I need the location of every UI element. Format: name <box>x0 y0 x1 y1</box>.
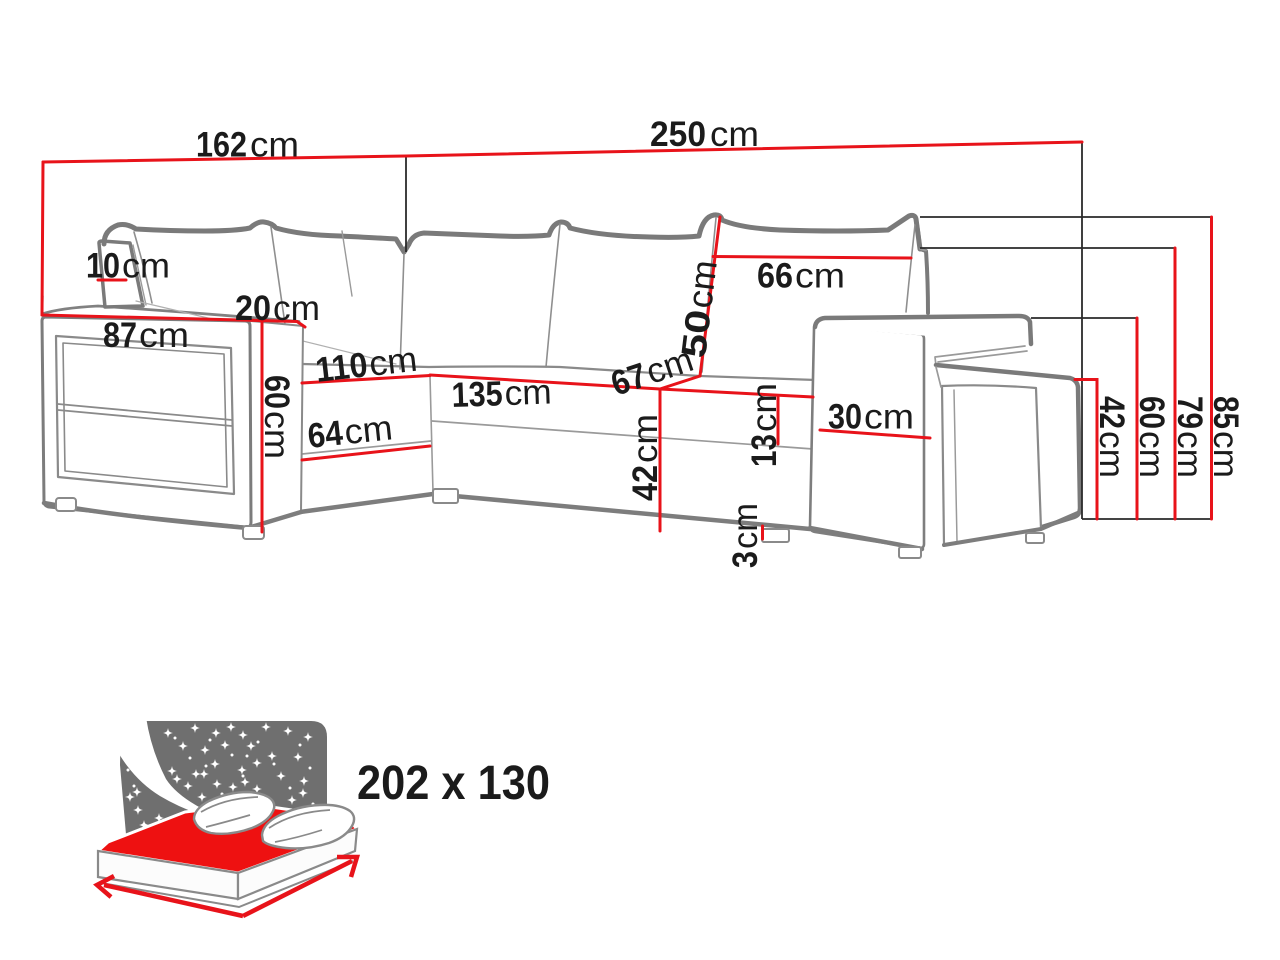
svg-text:cm: cm <box>680 258 725 310</box>
svg-text:42: 42 <box>626 465 665 501</box>
svg-text:42: 42 <box>1092 396 1131 429</box>
svg-text:162: 162 <box>196 126 247 165</box>
svg-text:cm: cm <box>864 398 914 437</box>
svg-text:202 x 130: 202 x 130 <box>357 757 550 810</box>
svg-text:250: 250 <box>650 115 706 154</box>
svg-text:cm: cm <box>626 414 665 463</box>
svg-text:cm: cm <box>257 411 296 459</box>
svg-text:66: 66 <box>757 257 793 296</box>
svg-text:cm: cm <box>726 503 765 549</box>
svg-text:3: 3 <box>726 551 765 568</box>
svg-text:cm: cm <box>504 373 552 414</box>
svg-text:79: 79 <box>1170 396 1209 429</box>
svg-text:cm: cm <box>1206 431 1245 478</box>
svg-text:60: 60 <box>1132 396 1171 429</box>
svg-text:cm: cm <box>1170 431 1209 478</box>
svg-text:cm: cm <box>273 289 320 328</box>
svg-text:cm: cm <box>343 408 395 452</box>
svg-text:cm: cm <box>795 257 845 296</box>
svg-text:cm: cm <box>122 247 170 286</box>
svg-text:50: 50 <box>674 308 719 360</box>
svg-text:cm: cm <box>1092 431 1131 478</box>
svg-text:cm: cm <box>367 340 419 384</box>
svg-text:64: 64 <box>306 413 345 455</box>
svg-text:10: 10 <box>86 247 120 286</box>
svg-text:87: 87 <box>103 316 137 355</box>
svg-text:20: 20 <box>235 289 271 328</box>
svg-text:60: 60 <box>257 375 296 409</box>
svg-text:cm: cm <box>139 316 189 355</box>
svg-text:cm: cm <box>1132 431 1171 478</box>
svg-text:13: 13 <box>745 434 784 467</box>
svg-text:cm: cm <box>250 126 299 165</box>
svg-text:85: 85 <box>1206 396 1245 429</box>
svg-text:110: 110 <box>313 345 369 390</box>
svg-text:135: 135 <box>451 374 503 415</box>
svg-text:cm: cm <box>710 115 759 154</box>
svg-text:30: 30 <box>828 398 862 437</box>
svg-text:cm: cm <box>745 383 784 432</box>
